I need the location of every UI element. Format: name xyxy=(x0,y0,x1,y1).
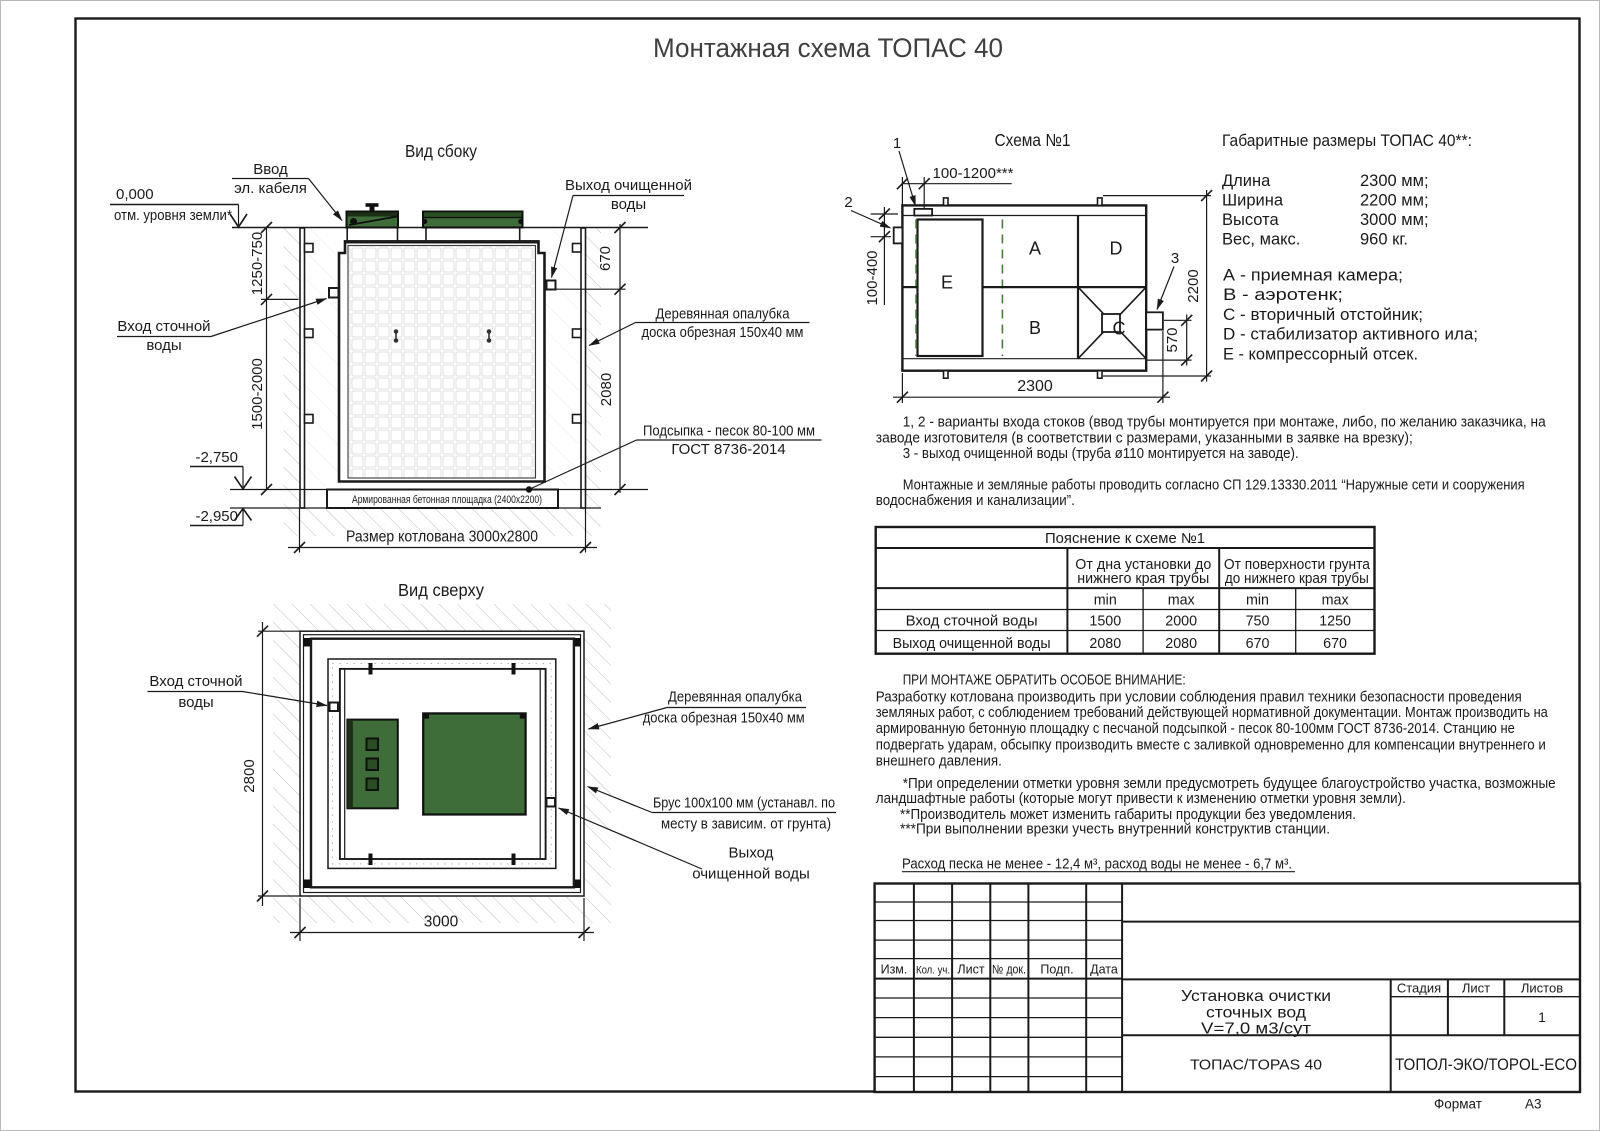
svg-text:эл. кабеля: эл. кабеля xyxy=(234,180,307,197)
svg-text:воды: воды xyxy=(611,196,646,213)
svg-text:0,000: 0,000 xyxy=(116,186,154,203)
svg-text:max: max xyxy=(1322,593,1349,609)
svg-text:внешнего давления.: внешнего давления. xyxy=(876,754,1002,770)
svg-text:1: 1 xyxy=(1538,1009,1546,1025)
svg-text:1500: 1500 xyxy=(1089,614,1121,630)
svg-text:-2,750: -2,750 xyxy=(195,449,238,466)
svg-text:D: D xyxy=(1110,239,1123,259)
svg-text:-2,950: -2,950 xyxy=(195,508,238,525)
svg-text:Лист: Лист xyxy=(1462,981,1490,996)
svg-text:Армированная бетонная площадка: Армированная бетонная площадка (2400х220… xyxy=(352,494,542,506)
svg-text:отм. уровня земли*: отм. уровня земли* xyxy=(114,207,232,224)
svg-text:100-1200***: 100-1200*** xyxy=(933,165,1014,182)
svg-text:1: 1 xyxy=(893,135,901,152)
svg-text:Длина: Длина xyxy=(1222,172,1271,190)
svg-text:армированную бетонную площадку: армированную бетонную площадку с песчано… xyxy=(876,721,1515,737)
svg-text:водоснабжения и канализации”.: водоснабжения и канализации”. xyxy=(876,493,1075,509)
svg-text:Выход: Выход xyxy=(729,845,774,862)
svg-text:ТОПАС/TOPAS 40: ТОПАС/TOPAS 40 xyxy=(1190,1057,1322,1074)
svg-text:ПРИ МОНТАЖЕ ОБРАТИТЬ ОСОБОЕ ВН: ПРИ МОНТАЖЕ ОБРАТИТЬ ОСОБОЕ ВНИМАНИЕ: xyxy=(903,672,1186,688)
svg-text:2000: 2000 xyxy=(1165,614,1197,630)
svg-text:Монтажные и земляные работы пр: Монтажные и земляные работы проводить со… xyxy=(903,478,1525,494)
svg-text:Ввод: Ввод xyxy=(253,161,288,178)
svg-text:до нижнего края трубы: до нижнего края трубы xyxy=(1225,571,1369,587)
svg-text:Схема №1: Схема №1 xyxy=(995,130,1071,150)
svg-text:3: 3 xyxy=(1171,250,1179,267)
svg-text:Вход сточной: Вход сточной xyxy=(149,673,242,690)
svg-text:100-400: 100-400 xyxy=(864,250,881,305)
svg-text:670: 670 xyxy=(1246,636,1270,652)
svg-text:2200 мм;: 2200 мм; xyxy=(1360,192,1429,210)
svg-text:1250: 1250 xyxy=(1319,614,1351,630)
svg-text:Деревянная опалубка: Деревянная опалубка xyxy=(656,306,791,323)
svg-text:земляных работ, с соблюдением: земляных работ, с соблюдением требований… xyxy=(876,705,1548,721)
svg-text:Кол. уч.: Кол. уч. xyxy=(916,965,950,977)
svg-text:min: min xyxy=(1094,593,1117,609)
svg-text:1, 2 - варианты входа стоков: 1, 2 - варианты входа стоков (ввод трубы… xyxy=(903,415,1546,431)
svg-text:Деревянная опалубка: Деревянная опалубка xyxy=(668,689,803,706)
svg-text:***При выполнении врезки учест: ***При выполнении врезки учесть внутренн… xyxy=(900,822,1330,838)
svg-text:Габаритные размеры ТОПАС 40**:: Габаритные размеры ТОПАС 40**: xyxy=(1222,131,1472,150)
svg-text:Формат: Формат xyxy=(1434,1097,1482,1112)
svg-text:2300 мм;: 2300 мм; xyxy=(1360,172,1429,190)
svg-text:воды: воды xyxy=(178,694,213,711)
svg-text:доска обрезная 150х40 мм: доска обрезная 150х40 мм xyxy=(643,710,805,727)
svg-text:А3: А3 xyxy=(1525,1097,1542,1112)
svg-text:2300: 2300 xyxy=(1017,378,1053,395)
svg-text:ландшафтные работы (которые мо: ландшафтные работы (которые могут привес… xyxy=(876,791,1406,807)
svg-text:2800: 2800 xyxy=(241,759,258,792)
svg-text:месту в зависим. от грунта): месту в зависим. от грунта) xyxy=(661,816,831,833)
svg-text:**Производитель может изменить: **Производитель может изменить габариты … xyxy=(900,807,1356,823)
svg-text:1500-2000: 1500-2000 xyxy=(249,358,266,430)
svg-text:3000: 3000 xyxy=(424,914,459,931)
svg-text:Установка очистки: Установка очистки xyxy=(1181,988,1331,1005)
svg-text:2080: 2080 xyxy=(1165,636,1197,652)
svg-text:Размер котлована 3000х2800: Размер котлована 3000х2800 xyxy=(346,529,538,546)
svg-text:ТОПОЛ-ЭКО/TOPOL-ECO: ТОПОЛ-ЭКО/TOPOL-ECO xyxy=(1395,1056,1577,1074)
svg-text:заводе изготовителя (в соответ: заводе изготовителя (в соответствии с ра… xyxy=(876,430,1413,446)
svg-text:Дата: Дата xyxy=(1090,963,1118,977)
svg-text:Вход сточной: Вход сточной xyxy=(117,318,210,335)
svg-text:Вид сбоку: Вид сбоку xyxy=(405,141,477,161)
svg-text:А - приемная камера;: А - приемная камера; xyxy=(1223,267,1403,285)
svg-text:1250-750: 1250-750 xyxy=(249,232,266,295)
svg-text:Выход очищенной: Выход очищенной xyxy=(565,177,692,194)
svg-text:№ док.: № док. xyxy=(992,963,1026,977)
svg-text:подвергать ударам, обсыпку про: подвергать ударам, обсыпку производить в… xyxy=(876,738,1546,754)
svg-text:max: max xyxy=(1168,593,1195,609)
svg-text:доска обрезная 150х40 мм: доска обрезная 150х40 мм xyxy=(642,324,804,341)
svg-text:570: 570 xyxy=(1164,327,1181,352)
svg-text:V=7,0 м3/сут: V=7,0 м3/сут xyxy=(1201,1021,1312,1038)
svg-text:960 кг.: 960 кг. xyxy=(1360,231,1408,249)
svg-text:ГОСТ 8736-2014: ГОСТ 8736-2014 xyxy=(671,441,785,458)
svg-text:750: 750 xyxy=(1246,614,1270,630)
svg-text:B: B xyxy=(1029,318,1041,338)
svg-text:Вход сточной воды: Вход сточной воды xyxy=(906,614,1038,630)
svg-text:A: A xyxy=(1029,239,1041,259)
svg-text:670: 670 xyxy=(597,246,614,271)
svg-text:2080: 2080 xyxy=(598,373,615,406)
svg-text:Брус 100х100 мм (устанавл. по: Брус 100х100 мм (устанавл. по xyxy=(653,795,835,812)
svg-text:E: E xyxy=(941,273,953,293)
svg-text:670: 670 xyxy=(1323,636,1347,652)
svg-text:Ширина: Ширина xyxy=(1222,192,1284,210)
svg-text:Вес, макс.: Вес, макс. xyxy=(1222,231,1300,249)
svg-text:Изм.: Изм. xyxy=(881,963,908,977)
svg-text:3 - выход очищенной воды (труб: 3 - выход очищенной воды (труба ø110 мон… xyxy=(903,446,1299,462)
svg-text:Подп.: Подп. xyxy=(1040,963,1073,977)
svg-text:Е - компрессорный отсек.: Е - компрессорный отсек. xyxy=(1223,345,1418,363)
svg-text:Монтажная схема ТОПАС 40: Монтажная схема ТОПАС 40 xyxy=(653,33,1003,63)
svg-text:С - вторичный отстойник;: С - вторичный отстойник; xyxy=(1223,306,1423,324)
svg-text:воды: воды xyxy=(146,337,181,354)
svg-text:Выход очищенной воды: Выход очищенной воды xyxy=(893,636,1051,652)
svg-text:Расход песка не менее - 12,4 м: Расход песка не менее - 12,4 м³, расход … xyxy=(902,857,1292,873)
svg-text:2200: 2200 xyxy=(1185,269,1202,302)
svg-text:Лист: Лист xyxy=(957,963,984,977)
svg-text:*При определении отметки уровн: *При определении отметки уровня земли пр… xyxy=(903,776,1556,792)
svg-text:Пояснение к схеме №1: Пояснение к схеме №1 xyxy=(1045,531,1205,547)
svg-text:Листов: Листов xyxy=(1521,981,1563,996)
svg-text:min: min xyxy=(1246,593,1269,609)
svg-text:D - стабилизатор активного ила: D - стабилизатор активного ила; xyxy=(1223,326,1478,344)
svg-text:C: C xyxy=(1113,319,1126,339)
svg-text:Разработку котлована производи: Разработку котлована производить при усл… xyxy=(876,689,1522,705)
svg-text:Стадия: Стадия xyxy=(1397,981,1441,996)
svg-text:В - аэротенк;: В - аэротенк; xyxy=(1223,286,1343,304)
svg-text:2: 2 xyxy=(844,194,852,211)
svg-text:сточных вод: сточных вод xyxy=(1206,1005,1307,1022)
svg-text:Вид сверху: Вид сверху xyxy=(398,580,484,600)
svg-text:очищенной воды: очищенной воды xyxy=(692,866,810,883)
svg-text:Подсыпка - песок 80-100 мм: Подсыпка - песок 80-100 мм xyxy=(643,423,815,440)
svg-text:нижнего края трубы: нижнего края трубы xyxy=(1077,571,1209,587)
svg-text:Высота: Высота xyxy=(1222,211,1279,229)
svg-text:3000 мм;: 3000 мм; xyxy=(1360,211,1429,229)
svg-text:2080: 2080 xyxy=(1089,636,1121,652)
